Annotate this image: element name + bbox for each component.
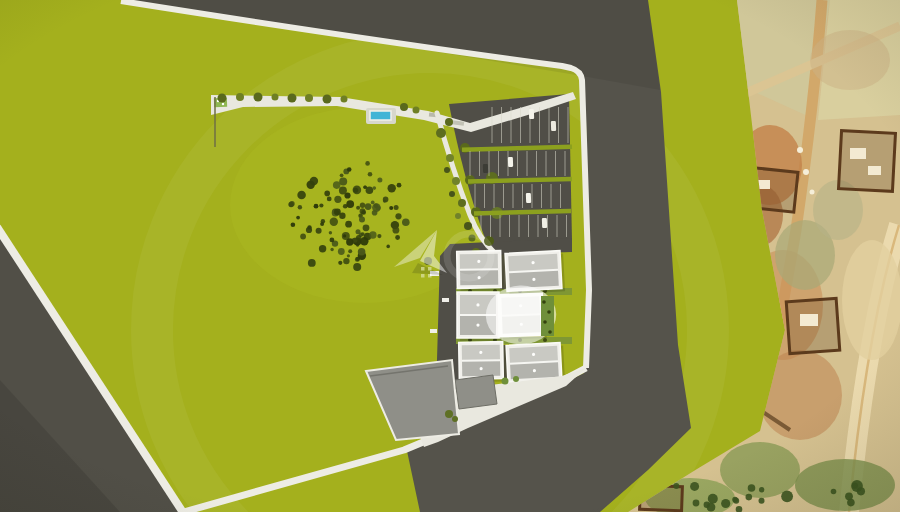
site-plan-canvas <box>0 0 900 512</box>
render-viewport <box>0 0 900 512</box>
vignette-overlay <box>0 0 900 512</box>
